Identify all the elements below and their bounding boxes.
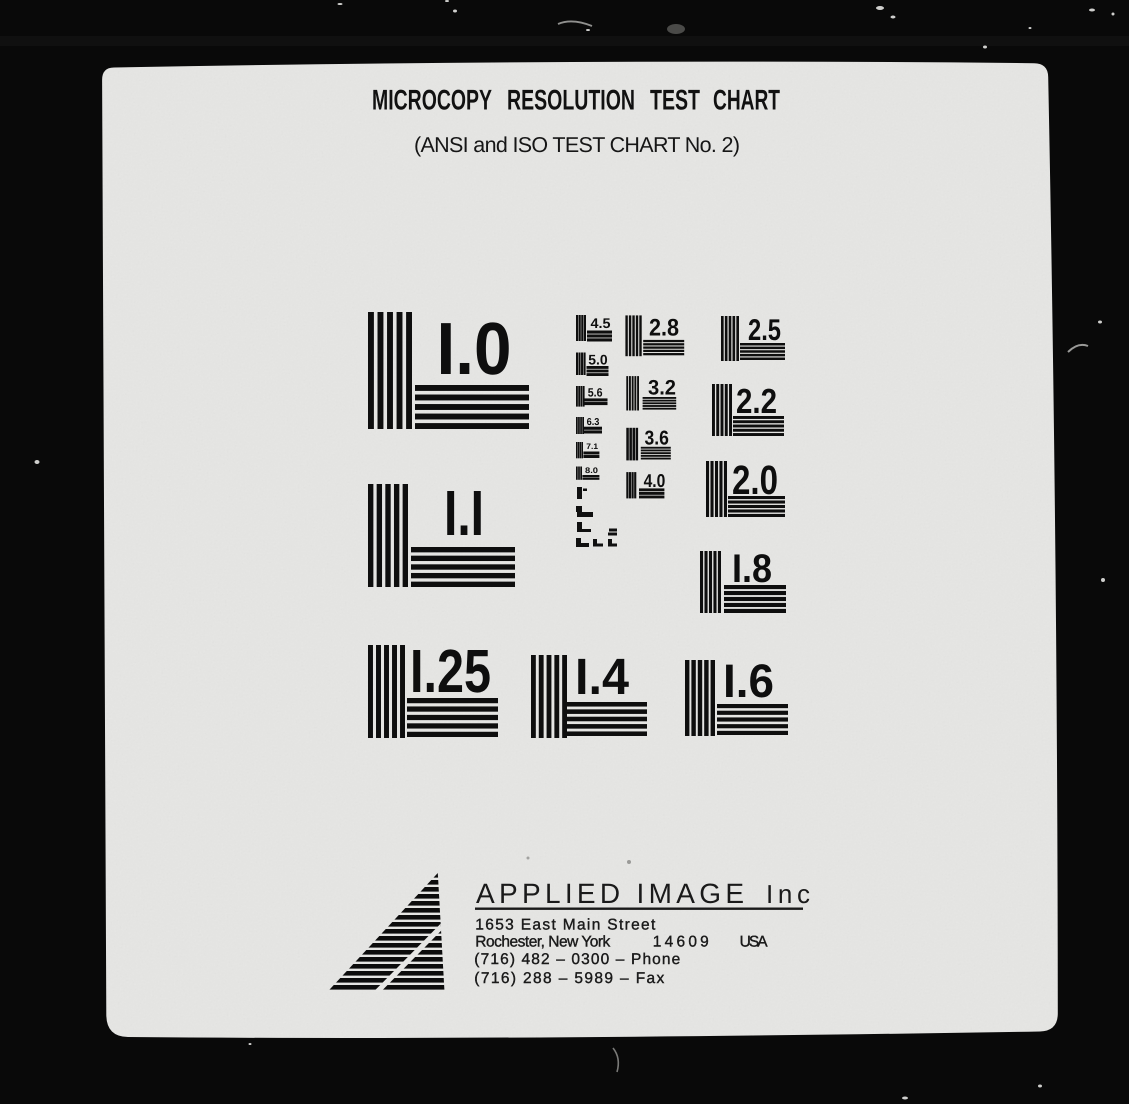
svg-text:CHART: CHART	[713, 85, 780, 117]
svg-text:8.0: 8.0	[585, 466, 599, 475]
svg-text:5.0: 5.0	[588, 352, 608, 368]
svg-text:TEST: TEST	[650, 85, 700, 117]
svg-text:I.I: I.I	[444, 477, 484, 549]
svg-text:(716) 288 – 5989 – Fax: (716) 288 – 5989 – Fax	[474, 970, 664, 987]
svg-text:APPLIED IMAGE: APPLIED IMAGE	[476, 878, 744, 909]
svg-text:3.6: 3.6	[645, 428, 669, 450]
svg-text:6.3: 6.3	[587, 417, 600, 428]
svg-text:RESOLUTION: RESOLUTION	[507, 85, 635, 117]
svg-text:I.6: I.6	[723, 654, 774, 707]
svg-text:MICROCOPY: MICROCOPY	[372, 85, 492, 117]
svg-text:4.5: 4.5	[591, 315, 611, 331]
svg-text:2.8: 2.8	[649, 314, 679, 341]
svg-text:4.0: 4.0	[644, 470, 666, 491]
svg-text:I.4: I.4	[575, 648, 630, 705]
svg-text:1653 East Main Street: 1653 East Main Street	[475, 917, 656, 934]
svg-text:5.6: 5.6	[588, 386, 603, 400]
svg-text:(ANSI and ISO TEST CHART No. 2: (ANSI and ISO TEST CHART No. 2)	[414, 133, 740, 157]
svg-text:3.2: 3.2	[648, 376, 676, 399]
svg-text:2.5: 2.5	[748, 314, 781, 347]
svg-text:I.25: I.25	[410, 637, 491, 705]
svg-text:I.0: I.0	[437, 307, 512, 390]
svg-text:7.1: 7.1	[586, 442, 598, 451]
svg-text:(716) 482 – 0300 – Phone: (716) 482 – 0300 – Phone	[474, 951, 680, 968]
svg-text:I.8: I.8	[732, 547, 772, 591]
svg-text:2.0: 2.0	[732, 457, 778, 503]
svg-text:14609: 14609	[653, 934, 709, 951]
svg-text:Rochester, New York: Rochester, New York	[475, 934, 610, 951]
svg-text:USA: USA	[740, 934, 769, 951]
svg-text:2.2: 2.2	[736, 382, 777, 421]
svg-text:Inc: Inc	[766, 879, 810, 909]
